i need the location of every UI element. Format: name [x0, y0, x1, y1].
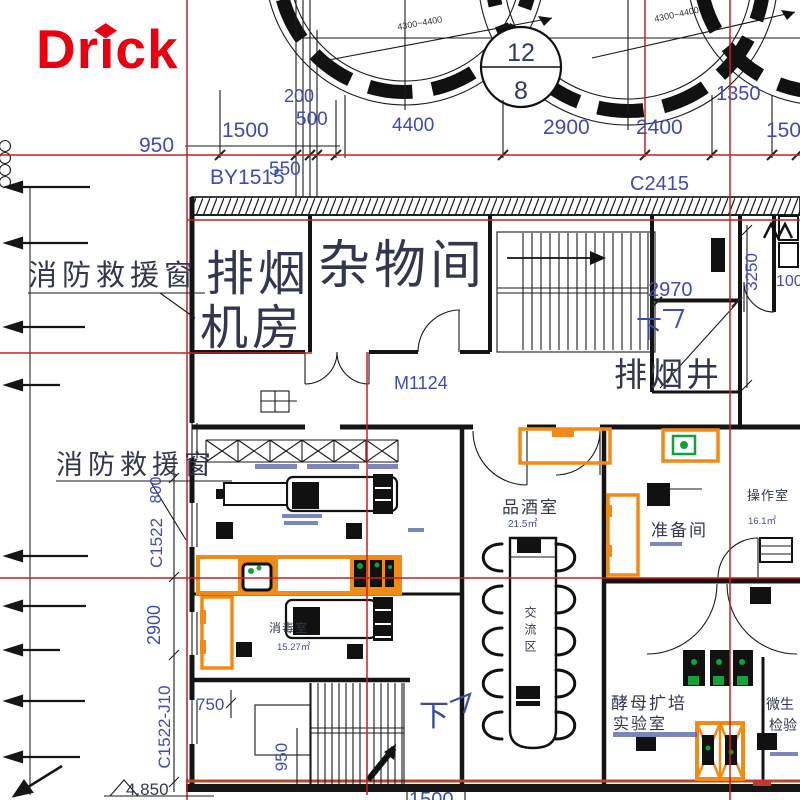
fire-window-label-2: 消防救援窗	[56, 450, 216, 480]
dim-1500-bottom: 1500	[409, 789, 454, 800]
down-arrow-top: 下	[636, 314, 662, 344]
room-caozuoshi: 操作室	[747, 488, 789, 503]
fire-window-label-1: 消防救援窗	[28, 259, 198, 292]
dim-1500-right: 1500	[766, 119, 800, 142]
room-xiaodushi: 消毒室	[269, 620, 308, 635]
dim-1350: 1350	[716, 83, 761, 105]
room-paiyanjing: 排烟井	[614, 356, 722, 393]
floor-plan-page: 12 8 4300~4400 4300~4400 950 1500 200 50…	[0, 0, 800, 800]
tank-callout-right: 4300~4400	[653, 5, 699, 24]
dim-c2415: C2415	[630, 173, 689, 195]
axis-bubble-bottom: 8	[514, 77, 528, 105]
down-arrow-bottom: 下	[419, 700, 449, 733]
axis-bubble-top: 12	[507, 39, 535, 67]
dim-1500: 1500	[222, 119, 269, 142]
room-pinjiushi: 品酒室	[502, 498, 559, 517]
dim-2970: 2970	[648, 279, 693, 301]
room-pinjiushi-area: 21.5㎡	[508, 518, 537, 530]
elevation-4850: 4.850	[126, 780, 169, 799]
window-c1522j: C1522-J10	[155, 685, 174, 768]
dim-800v: 800	[148, 477, 165, 504]
disinfection-room-furniture	[236, 597, 393, 659]
dim-200: 200	[284, 86, 314, 106]
room-jiaomu-2: 实验室	[613, 715, 667, 733]
dim-3250: 3250	[742, 253, 761, 291]
room-caozuoshi-area: 16.1㎡	[748, 516, 776, 527]
floor-plan-drawing: 12 8 4300~4400 4300~4400 950 1500 200 50…	[0, 0, 800, 800]
room-weisheng-2: 检验	[769, 717, 797, 733]
room-xiaodushi-area: 15.27㎡	[277, 642, 311, 653]
room-jiaomu-1: 酵母扩培	[611, 694, 687, 713]
dim-2900v: 2900	[144, 605, 164, 645]
dim-500: 500	[296, 109, 328, 130]
window-c1522: C1522	[147, 518, 166, 568]
room-weisheng-1: 微生	[766, 696, 794, 712]
dim-2400: 2400	[636, 116, 683, 139]
tank-callout-left: 4300~4400	[397, 14, 443, 32]
dim-950v: 950	[272, 743, 291, 771]
lab-bench-band	[206, 440, 398, 462]
dim-4400: 4400	[392, 115, 434, 136]
room-paiyan-2: 机房	[200, 302, 304, 355]
logo-diamond-icon: ◆	[94, 20, 117, 40]
room-zawujian: 杂物间	[318, 237, 486, 295]
dim-1000: 1000	[776, 273, 800, 290]
dim-2900: 2900	[543, 116, 590, 139]
dim-750: 750	[196, 695, 224, 714]
room-jiaoliu-label: 交流区	[521, 606, 539, 657]
coil-symbol	[0, 141, 11, 188]
highlighted-x-box	[697, 723, 743, 779]
room-paiyan-1: 排烟	[206, 248, 310, 301]
dim-950: 950	[139, 134, 174, 157]
dim-by1515: BY1515	[210, 166, 285, 189]
door-m1124: M1124	[394, 373, 448, 393]
room-zhunbeijian: 准备间	[651, 521, 708, 540]
staircase-top	[497, 232, 655, 352]
